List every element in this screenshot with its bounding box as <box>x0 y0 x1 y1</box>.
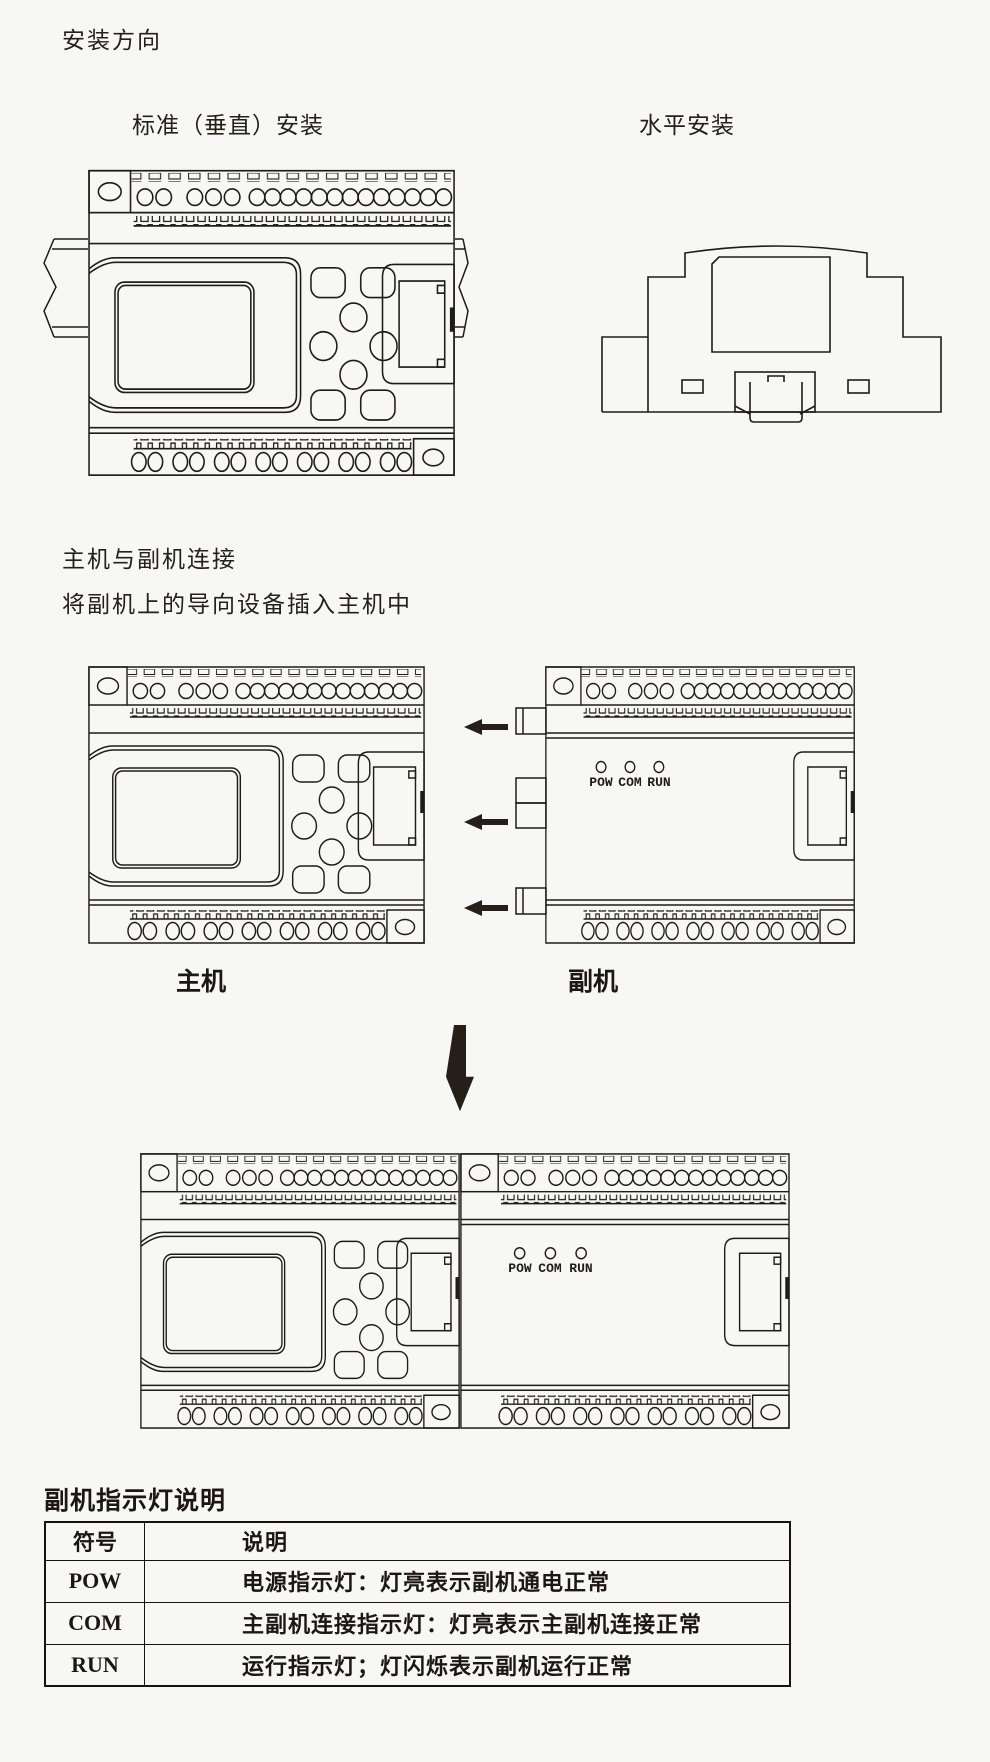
desc-cell: 主副机连接指示灯：灯亮表示主副机连接正常 <box>145 1602 791 1644</box>
table-header-row: 符号 说明 <box>45 1522 790 1560</box>
vertical-install-diagram <box>40 145 470 495</box>
led-label-com: COM <box>538 1261 562 1276</box>
insert-arrow-icon <box>464 900 508 916</box>
led-label-pow: POW <box>508 1261 532 1276</box>
plc-main-unit-front <box>89 667 424 943</box>
vertical-install-caption: 标准（垂直）安装 <box>132 106 324 140</box>
connect-heading: 主机与副机连接 <box>62 540 237 574</box>
table-row: RUN 运行指示灯；灯闪烁表示副机运行正常 <box>45 1644 790 1686</box>
indicator-table-heading: 副机指示灯说明 <box>44 1481 226 1517</box>
plc-profile-outline <box>602 246 941 422</box>
led-label-pow: POW <box>589 775 613 790</box>
column-header-symbol: 符号 <box>45 1522 145 1560</box>
din-rail-right <box>455 239 468 337</box>
main-unit-label: 主机 <box>153 962 249 998</box>
plc-sub-unit-front <box>546 667 854 943</box>
din-rail-left <box>44 239 88 337</box>
symbol-cell: RUN <box>45 1644 145 1686</box>
horizontal-install-diagram <box>540 218 960 423</box>
plc-main-unit-front <box>89 171 454 475</box>
insert-arrow-icon <box>464 814 508 830</box>
desc-cell: 运行指示灯；灯闪烁表示副机运行正常 <box>145 1644 791 1686</box>
plc-main-unit-front <box>141 1154 459 1428</box>
led-label-run: RUN <box>569 1261 592 1276</box>
connect-subheading: 将副机上的导向设备插入主机中 <box>62 585 412 619</box>
connect-diagram: POW COM RUN <box>40 655 960 1005</box>
led-label-run: RUN <box>647 775 670 790</box>
combine-down-arrow-icon <box>432 1020 488 1118</box>
sub-unit-label: 副机 <box>545 962 641 998</box>
table-row: POW 电源指示灯：灯亮表示副机通电正常 <box>45 1560 790 1602</box>
guide-tabs <box>516 708 546 914</box>
insert-arrow-icon <box>464 719 508 735</box>
column-header-desc: 说明 <box>145 1522 791 1560</box>
indicator-table: 符号 说明 POW 电源指示灯：灯亮表示副机通电正常 COM 主副机连接指示灯：… <box>44 1521 791 1687</box>
desc-cell: 电源指示灯：灯亮表示副机通电正常 <box>145 1560 791 1602</box>
symbol-cell: COM <box>45 1602 145 1644</box>
page-title: 安装方向 <box>62 21 162 55</box>
led-label-com: COM <box>618 775 642 790</box>
plc-sub-unit-front <box>461 1154 789 1428</box>
combined-diagram: POW COM RUN <box>130 1140 810 1440</box>
table-row: COM 主副机连接指示灯：灯亮表示主副机连接正常 <box>45 1602 790 1644</box>
symbol-cell: POW <box>45 1560 145 1602</box>
horizontal-install-caption: 水平安装 <box>639 106 735 140</box>
